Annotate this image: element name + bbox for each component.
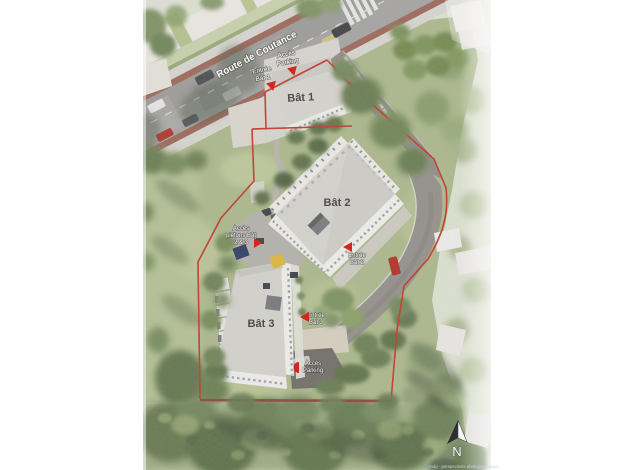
svg-text:2Pmdg · perspectives photograp: 2Pmdg · perspectives photographiques — [424, 464, 499, 469]
svg-text:2 & 3: 2 & 3 — [234, 240, 249, 246]
svg-text:Bât 1: Bât 1 — [287, 91, 314, 104]
svg-text:Accès: Accès — [305, 361, 321, 367]
svg-text:Entrée: Entrée — [348, 253, 366, 259]
svg-text:piétons Bât: piétons Bât — [226, 233, 256, 239]
svg-text:Bât 3: Bât 3 — [248, 318, 275, 330]
svg-text:Bât 2: Bât 2 — [350, 260, 365, 266]
svg-text:Parking: Parking — [303, 368, 323, 374]
svg-text:Entrée: Entrée — [307, 313, 325, 319]
svg-text:Bât 2: Bât 2 — [324, 197, 351, 209]
svg-text:Bât 3: Bât 3 — [309, 320, 324, 326]
svg-text:Accès: Accès — [233, 226, 249, 232]
svg-text:N: N — [452, 444, 461, 459]
